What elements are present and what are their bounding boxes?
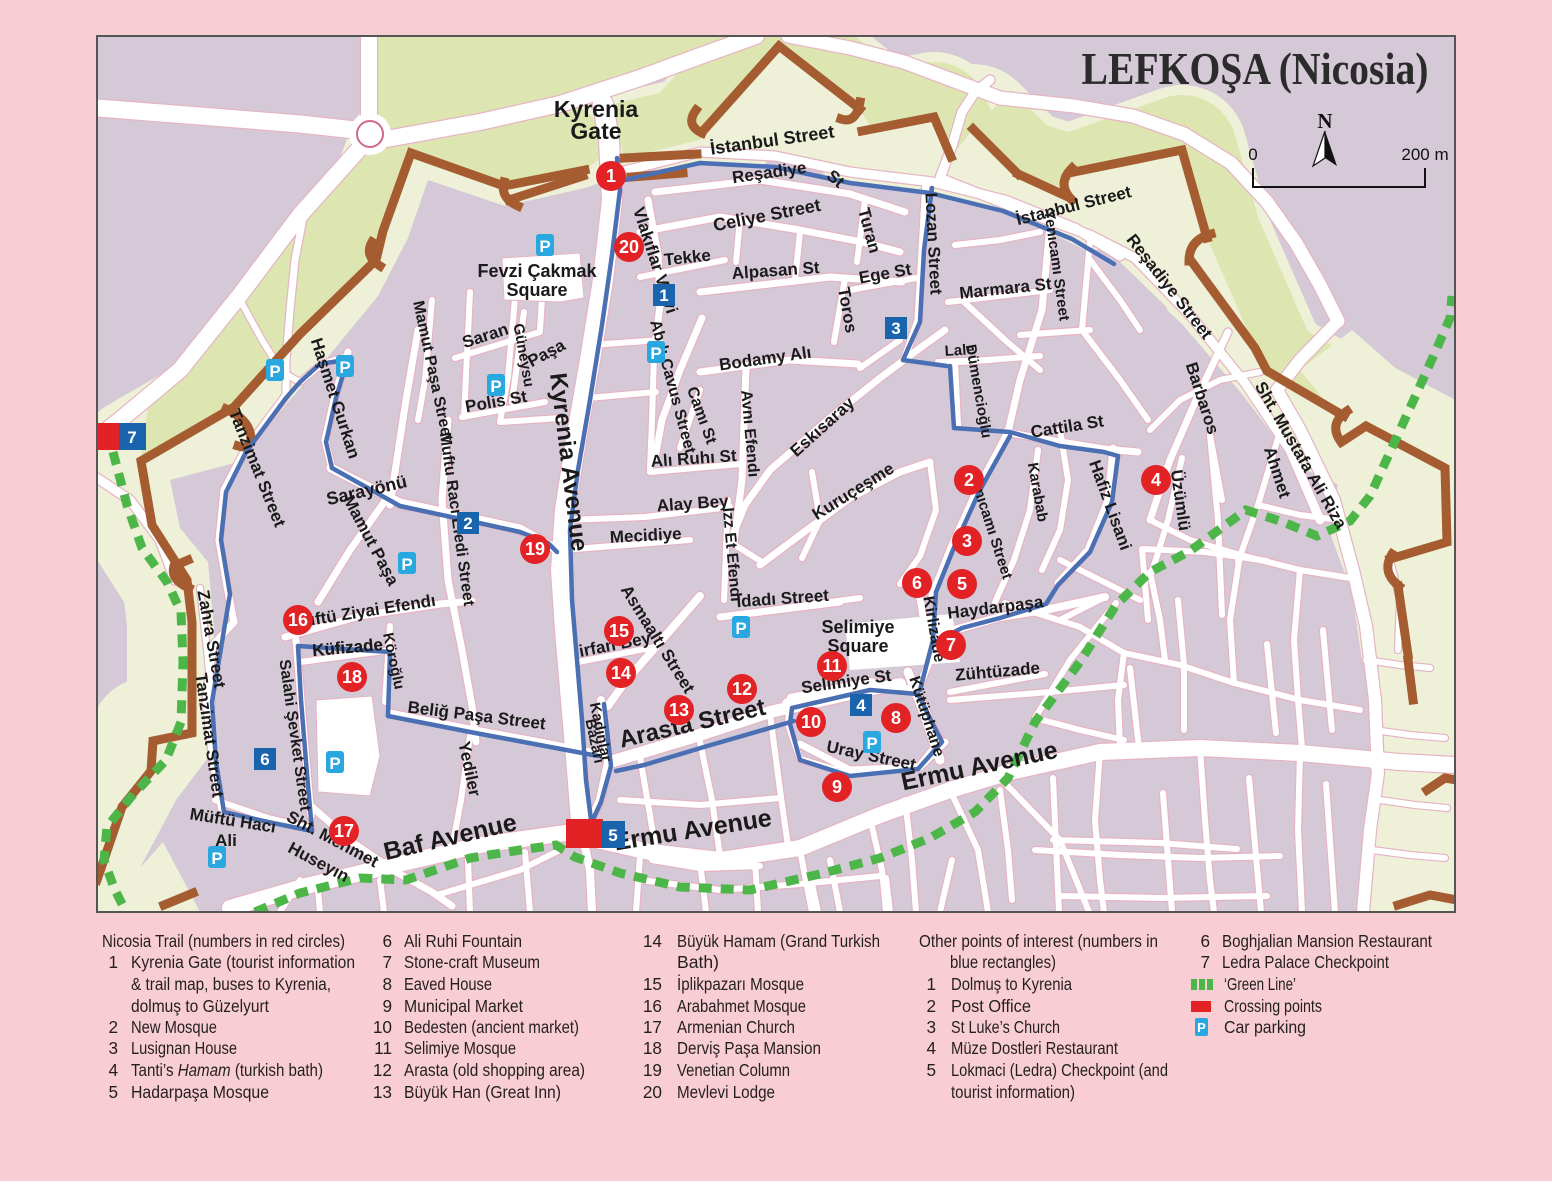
svg-text:2: 2 [926, 996, 936, 1016]
svg-text:Mevlevi Lodge: Mevlevi Lodge [677, 1082, 775, 1102]
svg-text:20: 20 [643, 1082, 662, 1102]
svg-text:P: P [735, 619, 746, 638]
svg-text:18: 18 [342, 667, 362, 687]
svg-text:18: 18 [643, 1038, 662, 1058]
svg-text:P: P [539, 237, 550, 256]
svg-text:Büyük Han (Great Inn): Büyük Han (Great Inn) [404, 1082, 561, 1102]
svg-text:5: 5 [926, 1060, 936, 1080]
svg-text:12: 12 [732, 679, 752, 699]
svg-text:2: 2 [463, 514, 472, 533]
svg-text:Hadarpaşa Mosque: Hadarpaşa Mosque [131, 1082, 269, 1102]
svg-text:Dolmuş to Kyrenia: Dolmuş to Kyrenia [951, 974, 1072, 994]
svg-text:Lokmaci (Ledra) Checkpoint (an: Lokmaci (Ledra) Checkpoint (and [951, 1060, 1168, 1080]
svg-text:Fevzi Çakmak: Fevzi Çakmak [477, 261, 597, 281]
svg-text:Arasta (old shopping area): Arasta (old shopping area) [404, 1060, 585, 1080]
svg-text:9: 9 [382, 996, 392, 1016]
svg-text:11: 11 [822, 656, 841, 676]
svg-text:P: P [866, 734, 877, 753]
svg-text:Ledra Palace Checkpoint: Ledra Palace Checkpoint [1222, 952, 1389, 972]
svg-text:12: 12 [373, 1060, 392, 1080]
svg-text:Municipal Market: Municipal Market [404, 996, 523, 1016]
svg-text:6: 6 [912, 573, 922, 593]
svg-text:P: P [269, 362, 280, 381]
svg-text:5: 5 [957, 574, 967, 594]
svg-text:Nicosia Trail (numbers in red: Nicosia Trail (numbers in red circles) [102, 931, 345, 951]
svg-text:Stone-craft Museum: Stone-craft Museum [404, 952, 540, 972]
svg-text:17: 17 [643, 1017, 662, 1037]
svg-text:6: 6 [1200, 931, 1210, 951]
svg-text:10: 10 [801, 712, 821, 732]
svg-text:13: 13 [669, 700, 689, 720]
svg-text:0: 0 [1248, 145, 1257, 164]
svg-text:Müze Dostleri Restaurant: Müze Dostleri Restaurant [951, 1038, 1118, 1058]
svg-text:20: 20 [619, 237, 639, 257]
svg-text:Gate: Gate [570, 118, 621, 144]
svg-text:1: 1 [659, 286, 668, 305]
svg-text:Square: Square [506, 280, 567, 300]
svg-text:Armenian Church: Armenian Church [677, 1017, 795, 1037]
svg-text:İplikpazarı Mosque: İplikpazarı Mosque [677, 974, 804, 994]
svg-text:Other points of interest (numb: Other points of interest (numbers in [919, 931, 1158, 951]
svg-text:7: 7 [382, 952, 392, 972]
svg-text:1: 1 [926, 974, 936, 994]
svg-text:Arabahmet Mosque: Arabahmet Mosque [677, 996, 806, 1016]
svg-text:9: 9 [832, 777, 842, 797]
svg-text:Boghjalian Mansion Restaurant: Boghjalian Mansion Restaurant [1222, 931, 1432, 951]
svg-text:1: 1 [606, 166, 616, 186]
svg-text:Lusignan House: Lusignan House [131, 1038, 237, 1058]
svg-text:Selimiye: Selimiye [821, 617, 894, 637]
svg-text:St Luke’s Church: St Luke’s Church [951, 1017, 1060, 1037]
svg-text:blue rectangles): blue rectangles) [950, 952, 1056, 972]
svg-text:5: 5 [608, 826, 617, 845]
svg-text:4: 4 [1151, 470, 1161, 490]
svg-text:3: 3 [962, 531, 972, 551]
svg-text:8: 8 [891, 708, 901, 728]
svg-text:2: 2 [108, 1017, 118, 1037]
svg-text:Tanti’s Hamam (turkish bath): Tanti’s Hamam (turkish bath) [131, 1060, 323, 1080]
svg-text:Mecidiye: Mecidiye [609, 524, 682, 547]
svg-text:200 m: 200 m [1401, 145, 1448, 164]
svg-text:8: 8 [382, 974, 392, 994]
svg-text:Crossing points: Crossing points [1224, 996, 1322, 1016]
svg-text:14: 14 [643, 931, 663, 951]
svg-text:P: P [329, 754, 340, 773]
svg-text:New Mosque: New Mosque [131, 1017, 217, 1037]
svg-text:Kyrenia Gate (tourist informat: Kyrenia Gate (tourist information [131, 952, 355, 972]
svg-text:19: 19 [643, 1060, 662, 1080]
svg-text:4: 4 [108, 1060, 118, 1080]
svg-text:P: P [490, 377, 501, 396]
svg-text:Eaved House: Eaved House [404, 974, 492, 994]
svg-text:Post Office: Post Office [951, 996, 1031, 1016]
svg-text:P: P [650, 344, 661, 363]
svg-text:13: 13 [373, 1082, 392, 1102]
svg-text:& trail map, buses to Kyrenia,: & trail map, buses to Kyrenia, [131, 974, 331, 994]
svg-text:15: 15 [609, 621, 629, 641]
svg-text:16: 16 [288, 610, 308, 630]
svg-text:17: 17 [334, 821, 354, 841]
svg-text:19: 19 [525, 539, 545, 559]
svg-text:4: 4 [856, 696, 866, 715]
svg-text:3: 3 [891, 319, 900, 338]
svg-text:P: P [401, 555, 412, 574]
svg-text:P: P [211, 849, 222, 868]
svg-text:1: 1 [108, 952, 118, 972]
svg-text:Selimiye Mosque: Selimiye Mosque [404, 1038, 516, 1058]
svg-text:Venetian Column: Venetian Column [677, 1060, 790, 1080]
svg-text:Ali Ruhi Fountain: Ali Ruhi Fountain [404, 931, 522, 951]
svg-text:3: 3 [108, 1038, 118, 1058]
svg-text:14: 14 [611, 663, 631, 683]
svg-text:16: 16 [643, 996, 662, 1016]
svg-text:LEFKOŞA (Nicosia): LEFKOŞA (Nicosia) [1082, 43, 1429, 94]
svg-text:‘Green Line’: ‘Green Line’ [1224, 974, 1296, 994]
svg-text:7: 7 [1200, 952, 1210, 972]
svg-text:Derviş Paşa Mansion: Derviş Paşa Mansion [677, 1038, 821, 1058]
svg-text:tourist information): tourist information) [951, 1082, 1075, 1102]
svg-text:4: 4 [926, 1038, 936, 1058]
svg-text:10: 10 [373, 1017, 392, 1037]
svg-text:N: N [1317, 109, 1332, 133]
svg-text:7: 7 [127, 428, 136, 447]
svg-text:Büyük Hamam (Grand Turkish: Büyük Hamam (Grand Turkish [677, 931, 880, 951]
svg-text:5: 5 [108, 1082, 118, 1102]
svg-text:P: P [1197, 1020, 1206, 1035]
svg-text:Car parking: Car parking [1224, 1017, 1306, 1037]
svg-text:6: 6 [382, 931, 392, 951]
svg-text:Bedesten (ancient market): Bedesten (ancient market) [404, 1017, 579, 1037]
svg-text:11: 11 [374, 1038, 392, 1058]
svg-text:6: 6 [260, 750, 269, 769]
svg-text:Bath): Bath) [677, 952, 719, 972]
svg-text:3: 3 [926, 1017, 936, 1037]
svg-text:P: P [339, 358, 350, 377]
svg-text:15: 15 [643, 974, 662, 994]
svg-text:7: 7 [946, 635, 956, 655]
svg-text:2: 2 [964, 470, 974, 490]
svg-text:dolmuş to Güzelyurt: dolmuş to Güzelyurt [131, 996, 269, 1016]
